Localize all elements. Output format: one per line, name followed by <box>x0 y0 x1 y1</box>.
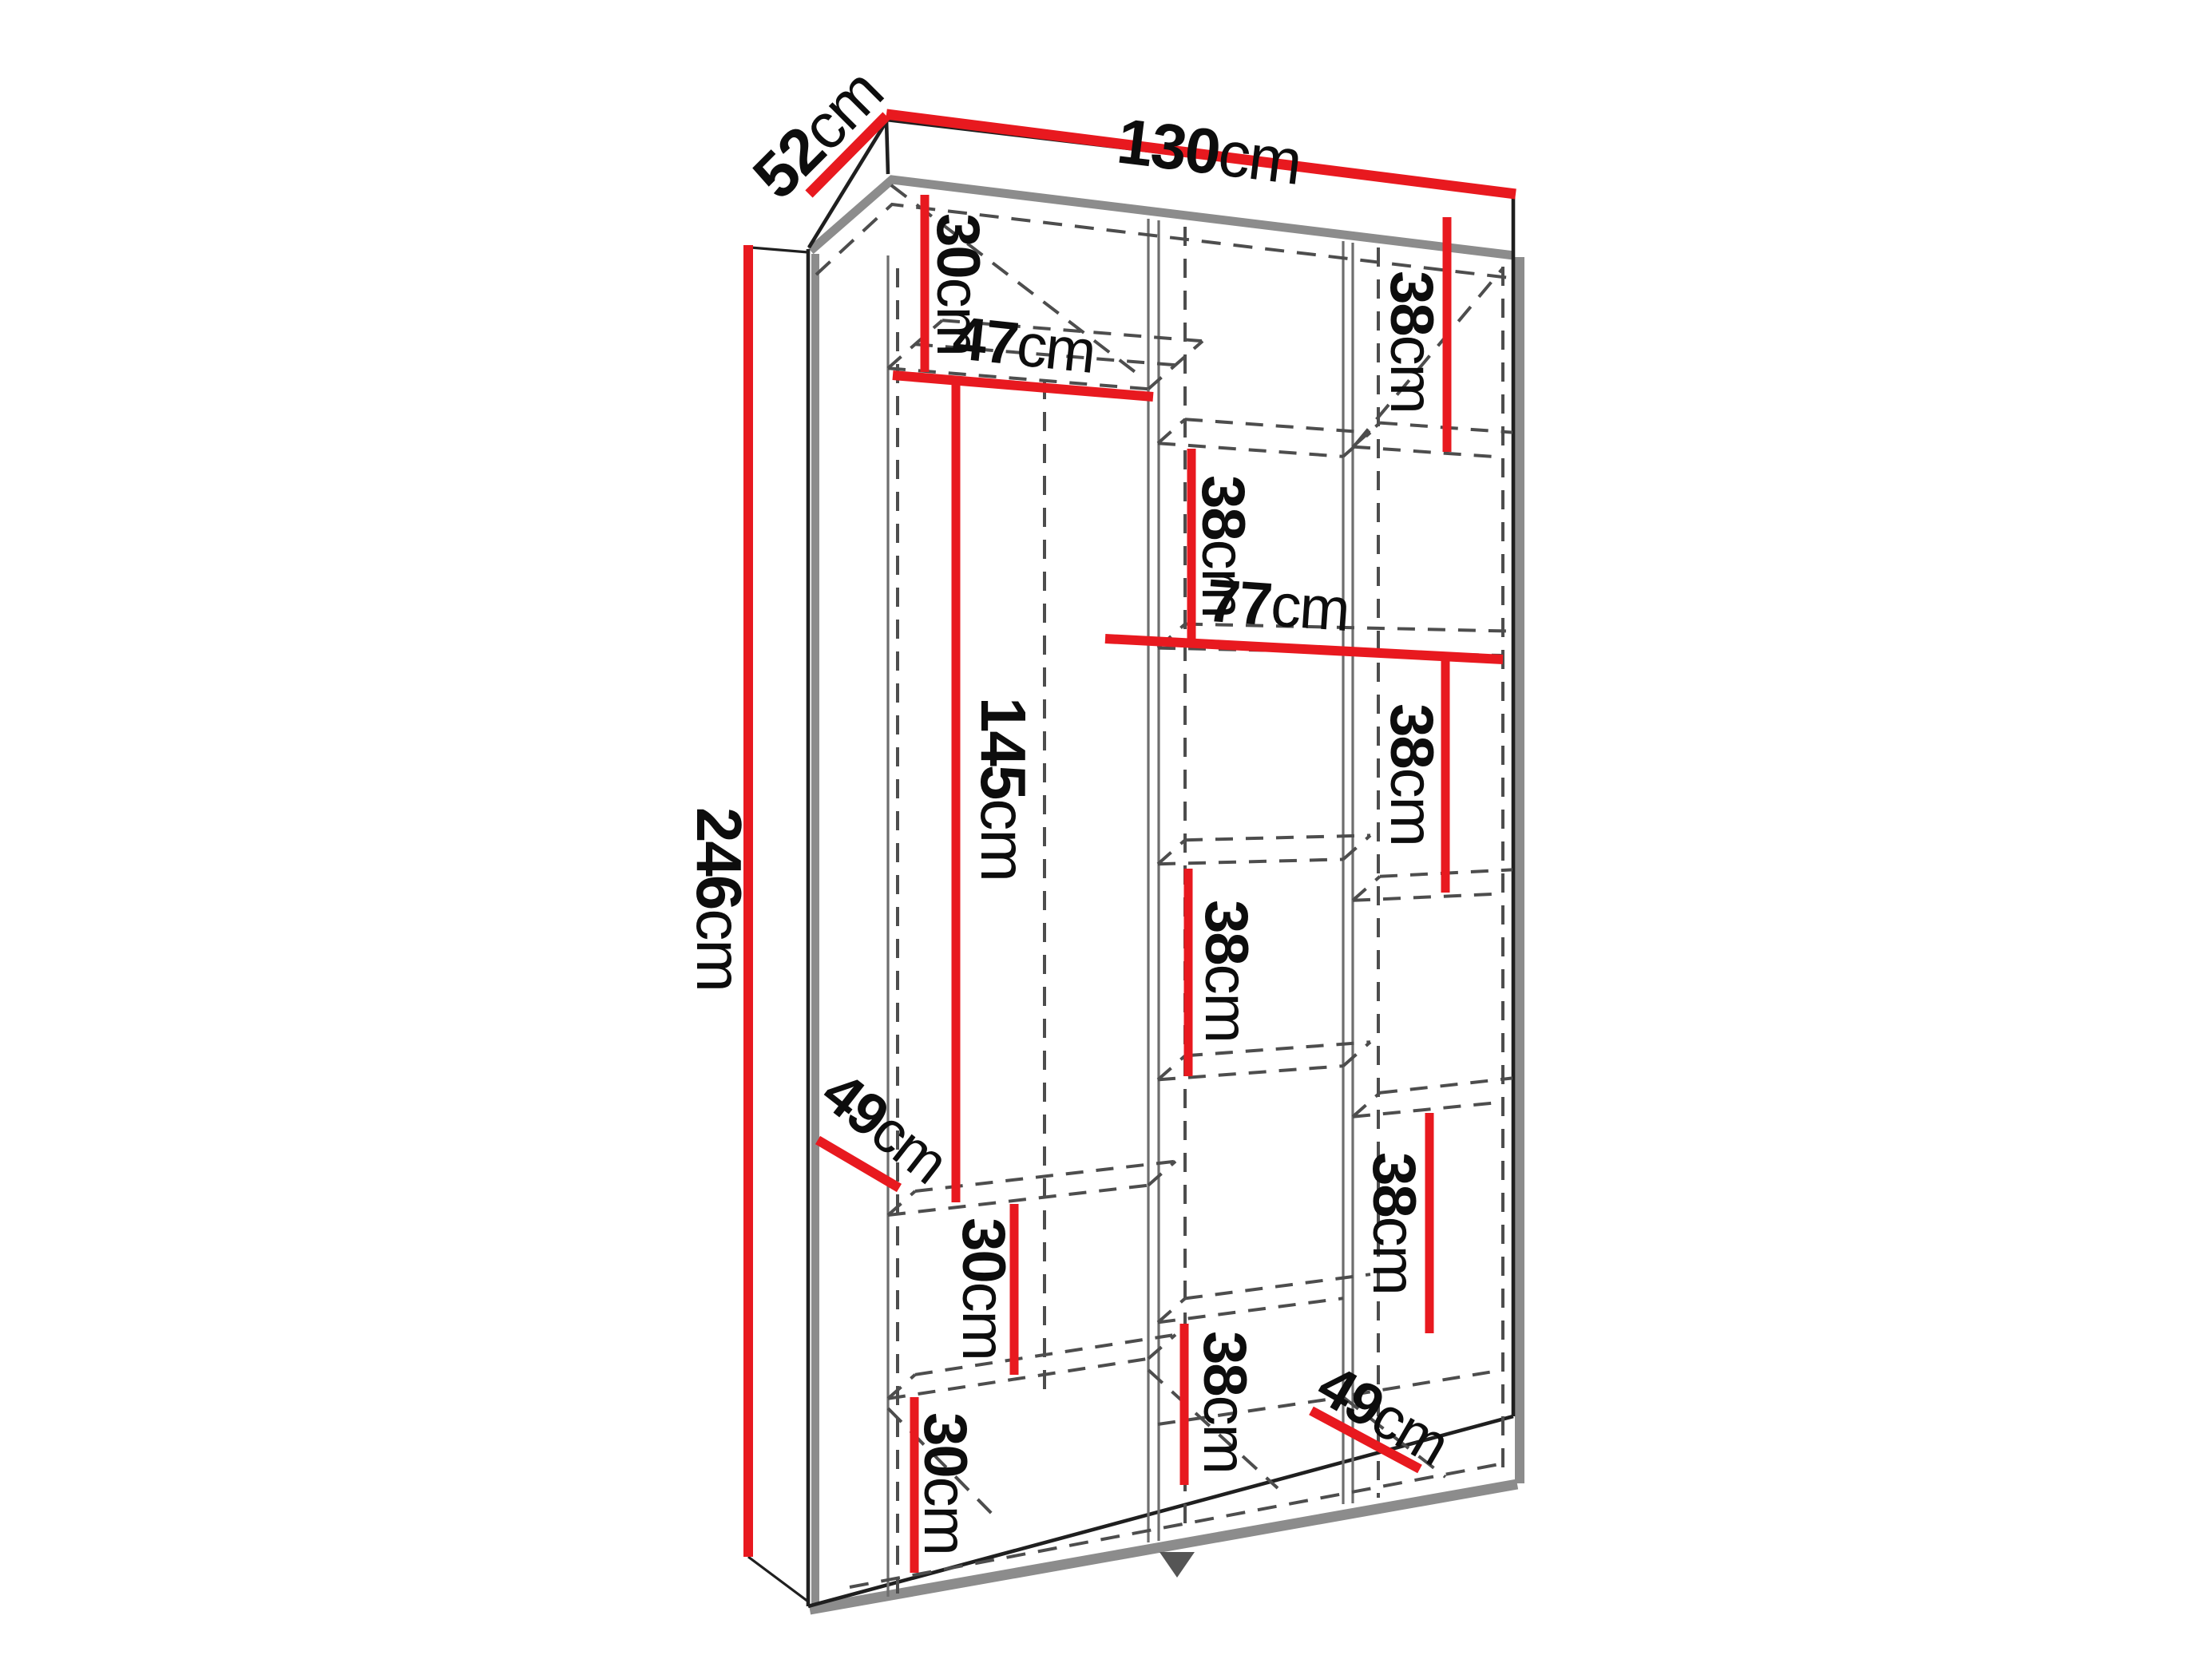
dim-label-left-bottom-30: 30cm <box>911 1412 979 1554</box>
diagram-stage: 130cm 52cm 246cm 30cm 47cm 145cm 30cm 30… <box>0 0 2212 1659</box>
dim-label-left-mid-30: 30cm <box>949 1218 1017 1360</box>
dim-label-right-mid-38: 38cm <box>1378 703 1445 845</box>
dim-label-width-130: 130cm <box>1113 105 1304 198</box>
height-ext-bottom <box>748 1557 808 1602</box>
top-slab-left-edge <box>886 120 888 174</box>
wardrobe-dimension-diagram: 130cm 52cm 246cm 30cm 47cm 145cm 30cm 30… <box>0 0 2212 1659</box>
shelf-left-lower <box>888 1335 1175 1399</box>
bottom-center-notch <box>1160 1552 1195 1578</box>
dim-label-hang-145: 145cm <box>968 697 1039 881</box>
dim-label-right-lower-38: 38cm <box>1360 1152 1428 1294</box>
dim-label-shelf-47: 47cm <box>949 304 1098 386</box>
top-front-edge-shadow <box>811 180 1514 255</box>
dim-label-bottom-right-49: 49cm <box>1307 1352 1460 1478</box>
dim-label-mid-lower-38: 38cm <box>1192 900 1260 1042</box>
dim-label-top-right-38: 38cm <box>1378 271 1445 413</box>
dim-label-mid-bottom-38: 38cm <box>1191 1331 1259 1473</box>
extension-lines <box>748 247 808 1602</box>
dim-label-width-77: 77cm <box>1204 567 1350 644</box>
height-ext-top <box>751 247 808 252</box>
dim-label-height-246: 246cm <box>684 807 755 991</box>
